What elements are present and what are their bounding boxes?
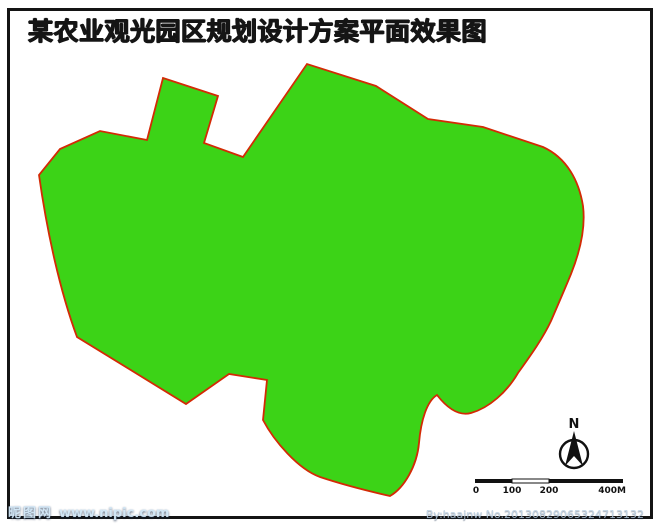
plan-sheet: 某农业观光园区规划设计方案平面效果图 xyxy=(0,0,658,529)
watermark-nipic: 昵图网www.nipic.com xyxy=(8,502,169,521)
north-arrow: N xyxy=(560,417,588,468)
site-boundary-line xyxy=(39,64,584,496)
scale-label-200: 200 xyxy=(540,486,559,496)
watermark-url: www.nipic.com xyxy=(59,506,169,521)
site-plan-map: N 0 100 200 400M xyxy=(0,0,658,529)
watermark-author: By:haajnw No.20130829065324713132 xyxy=(426,508,644,521)
scale-label-400: 400M xyxy=(598,486,626,496)
watermark-brand: 昵图网 xyxy=(8,506,53,521)
scale-label-100: 100 xyxy=(503,486,522,496)
north-label: N xyxy=(569,417,580,432)
scale-bar: 0 100 200 400M xyxy=(473,479,626,496)
scale-label-0: 0 xyxy=(473,486,479,496)
compass-needle xyxy=(565,431,583,466)
